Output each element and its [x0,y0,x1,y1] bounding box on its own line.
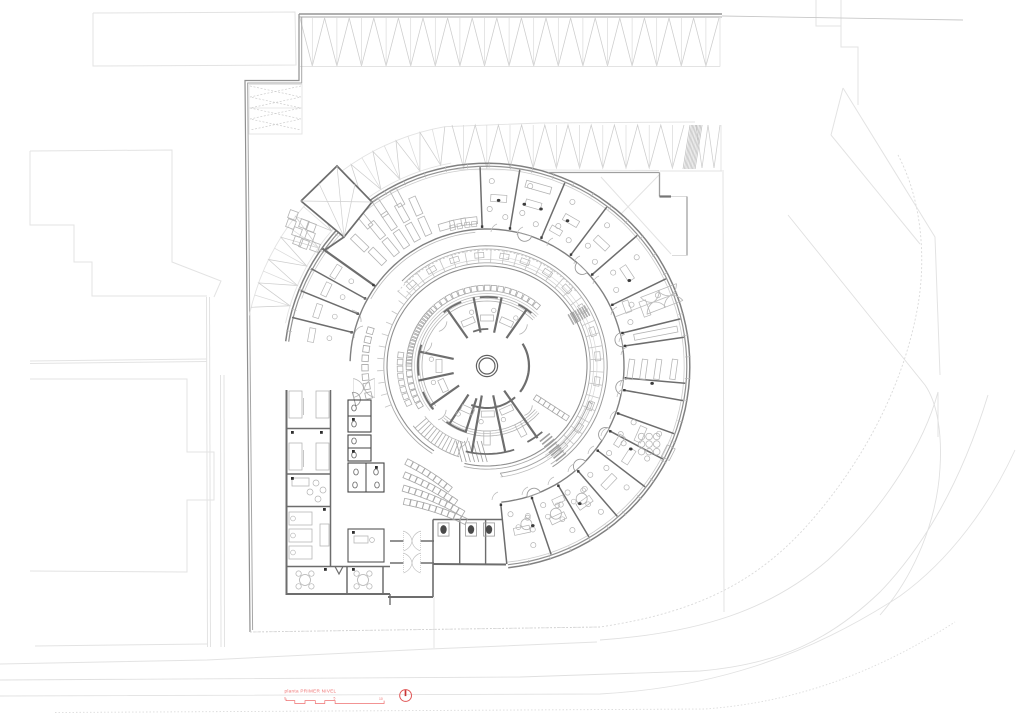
svg-text:0: 0 [284,697,286,701]
svg-text:10: 10 [379,697,383,701]
svg-text:planta PRIMER NIVEL: planta PRIMER NIVEL [285,689,337,694]
svg-text:5: 5 [334,697,336,701]
